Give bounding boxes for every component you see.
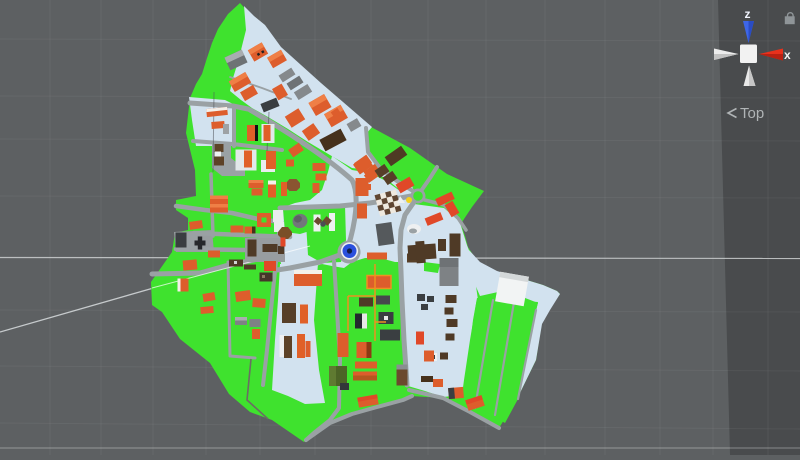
- svg-text:x: x: [784, 48, 791, 62]
- svg-text:z: z: [745, 7, 751, 21]
- svg-text:Top: Top: [740, 105, 764, 122]
